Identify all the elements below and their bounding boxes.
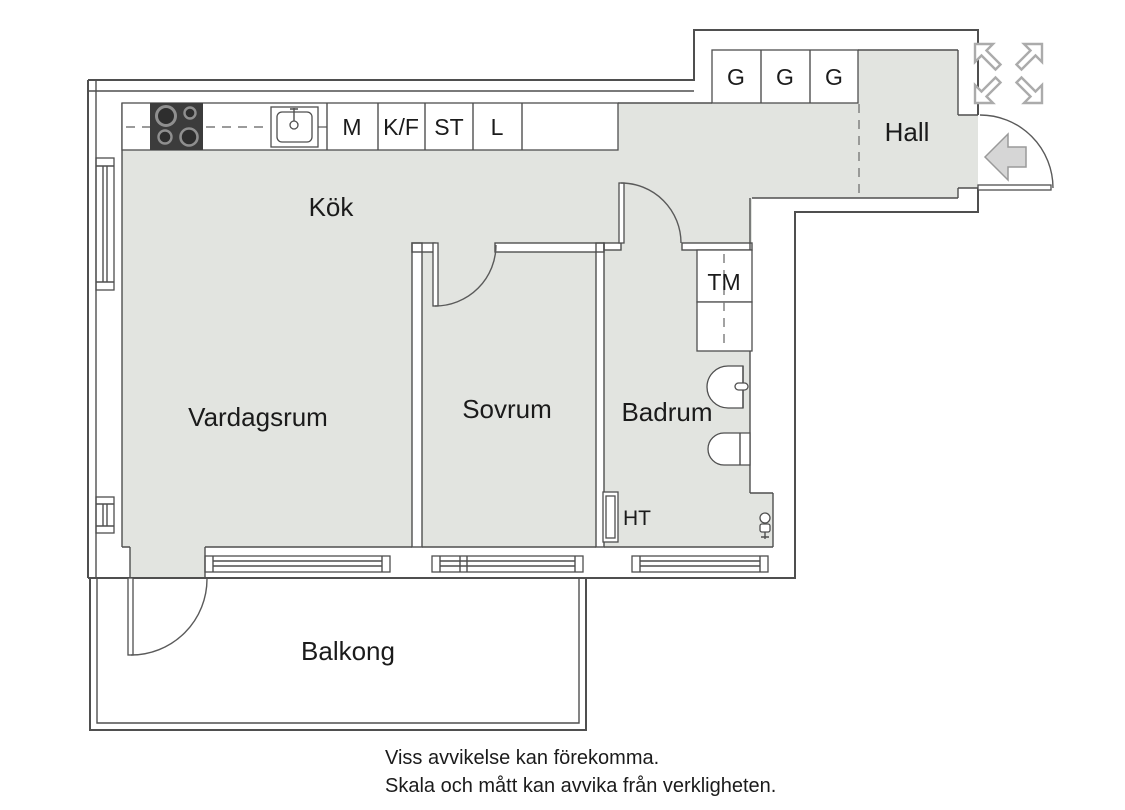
kitchen-label: Kök: [309, 192, 355, 222]
bedroom-wall-top-right: [495, 243, 604, 252]
balcony-door-threshold: [130, 547, 205, 578]
towel-dryer-label: HT: [623, 507, 651, 530]
sink-icon: [271, 107, 318, 147]
bedroom-wall-stub-left: [412, 243, 435, 252]
entry-door-leaf: [978, 185, 1051, 190]
window-bedroom-bottom: [432, 556, 583, 572]
balcony-label: Balkong: [301, 636, 395, 666]
closet-g1-label: G: [727, 64, 745, 90]
bedroom-door-threshold: [435, 243, 495, 252]
bathroom-door-leaf: [619, 183, 624, 243]
floor-plan-page: Kök Vardagsrum Sovrum Badrum Hall Balkon…: [0, 0, 1125, 810]
window-living-room-left: [96, 158, 114, 290]
closet-g3-label: G: [825, 64, 843, 90]
entry-arrow-icon: [985, 134, 1026, 180]
window-living-room-bottom: [205, 556, 390, 572]
kitchen-counter: [122, 103, 618, 150]
stove-icon: [150, 103, 203, 150]
balcony-door-arc: [131, 579, 207, 655]
toilet-icon: [708, 433, 750, 465]
stairwell-arrows-icon: [975, 44, 1042, 103]
window-living-room-left-small: [96, 497, 114, 533]
bathroom-door-threshold: [621, 243, 682, 250]
balcony-door-leaf: [128, 578, 133, 655]
floor-plan: Kök Vardagsrum Sovrum Badrum Hall Balkon…: [0, 0, 1125, 810]
disclaimer-line2: Skala och mått kan avvika från verklighe…: [385, 775, 776, 797]
entry-door: [978, 115, 1053, 190]
bathroom-wall-stub-left: [604, 243, 621, 250]
living-room-label: Vardagsrum: [188, 402, 328, 432]
kitchen-unit-kf-label: K/F: [383, 114, 419, 140]
window-bathroom-bottom: [632, 556, 768, 572]
bedroom-label: Sovrum: [462, 394, 552, 424]
balcony-door: [128, 578, 207, 655]
washing-machine-label: TM: [707, 269, 740, 295]
bedroom-door-leaf: [433, 243, 438, 306]
bathroom-label: Badrum: [621, 397, 712, 427]
living-bedroom-wall: [412, 243, 422, 547]
towel-dryer-icon: [603, 492, 618, 542]
stair-arrow-se-icon: [1017, 78, 1043, 104]
washing-machine-unit: [697, 250, 752, 351]
living-room-floor: [122, 103, 412, 547]
hall-label: Hall: [885, 117, 930, 147]
kitchen-unit-l-label: L: [491, 114, 504, 140]
closet-g2-label: G: [776, 64, 794, 90]
stair-arrow-ne-icon: [1017, 44, 1043, 70]
kitchen-unit-st-label: ST: [434, 114, 463, 140]
disclaimer-line1: Viss avvikelse kan förekomma.: [385, 747, 659, 769]
washbasin-icon: [707, 366, 748, 408]
bathroom-wall-top-right: [682, 243, 752, 250]
kitchen-unit-m-label: M: [342, 114, 361, 140]
disclaimer: Viss avvikelse kan förekomma. Skala och …: [385, 747, 776, 797]
entry-door-threshold: [958, 115, 978, 188]
